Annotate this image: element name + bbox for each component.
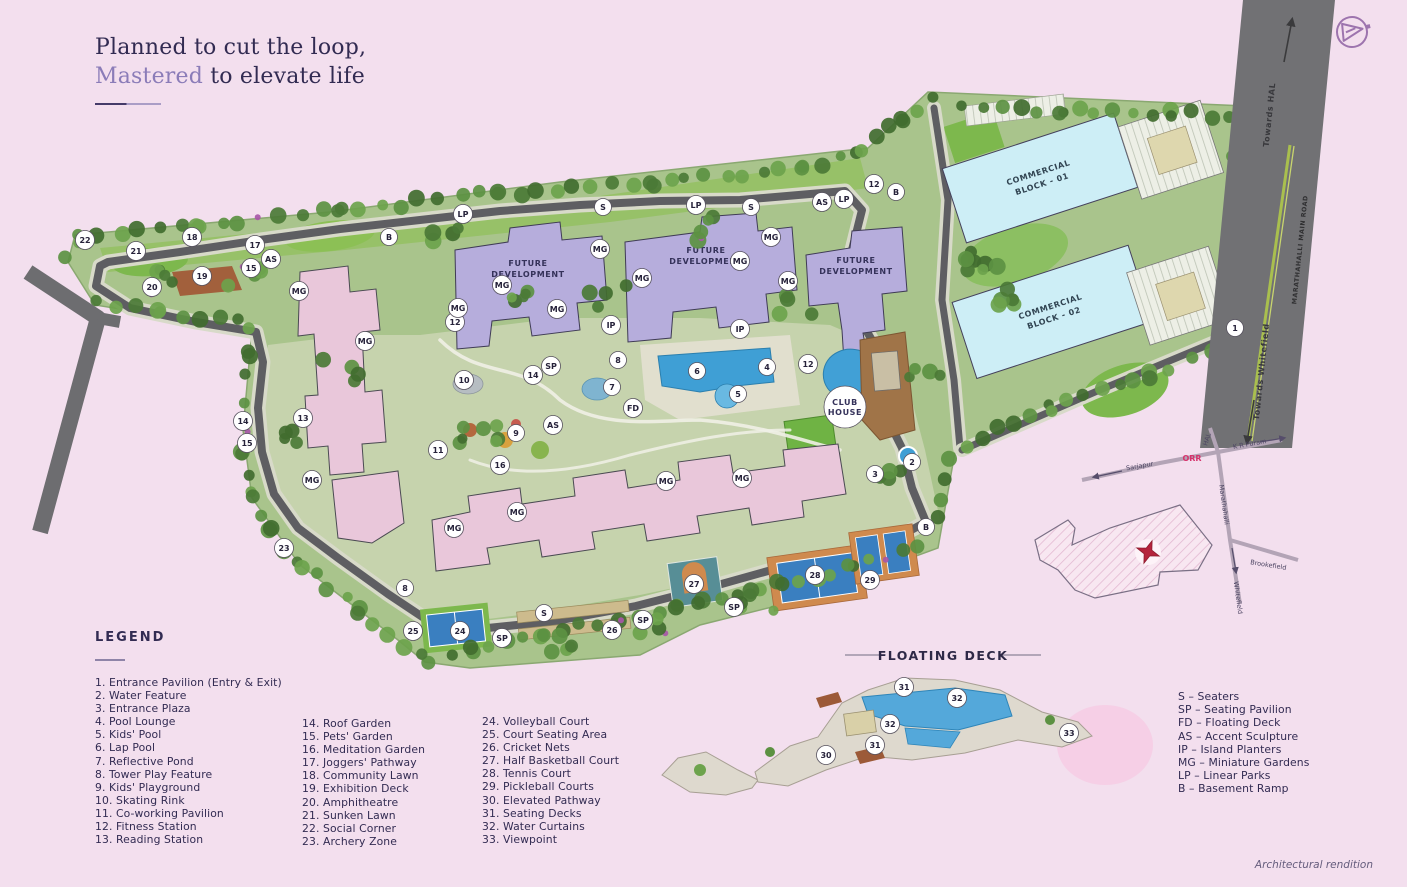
map-marker: MG — [303, 471, 322, 490]
legend-item: 18. Community Lawn — [302, 769, 425, 782]
inset-whitefield-label: Whitefield — [1232, 581, 1245, 615]
legend-heading: LEGEND — [95, 630, 165, 645]
svg-text:MG: MG — [733, 257, 748, 266]
map-marker: MG — [508, 503, 527, 522]
legend-abbreviation-item: IP – Island Planters — [1178, 743, 1309, 756]
legend-item: 33. Viewpoint — [482, 833, 619, 846]
map-marker: 6 — [689, 363, 706, 380]
site-plan-page: FUTURE DEVELOPMENT FUTURE DEVELOPMENT FU… — [0, 0, 1407, 887]
svg-text:MG: MG — [550, 305, 565, 314]
map-marker: S — [743, 199, 760, 216]
floating-deck-inset: FLOATING DECK — [662, 648, 1153, 795]
svg-text:LP: LP — [691, 201, 702, 210]
map-marker: 20 — [143, 278, 162, 297]
svg-text:33: 33 — [1063, 729, 1074, 738]
map-marker: IP — [602, 316, 621, 335]
map-marker: 32 — [948, 689, 967, 708]
svg-text:27: 27 — [688, 580, 699, 589]
map-marker: 4 — [759, 359, 776, 376]
legend-abbreviation-item: AS – Accent Sculpture — [1178, 730, 1309, 743]
legend-item: 7. Reflective Pond — [95, 755, 282, 768]
map-marker: AS — [262, 250, 281, 269]
map-marker: 26 — [603, 621, 622, 640]
svg-text:6: 6 — [694, 367, 700, 376]
legend-item: 4. Pool Lounge — [95, 715, 282, 728]
legend-item: 17. Joggers' Pathway — [302, 756, 425, 769]
svg-text:MG: MG — [510, 508, 525, 517]
map-marker: 31 — [895, 678, 914, 697]
legend-item: 29. Pickleball Courts — [482, 780, 619, 793]
svg-text:LP: LP — [839, 195, 850, 204]
svg-text:19: 19 — [196, 272, 208, 281]
svg-text:4: 4 — [764, 363, 770, 372]
map-marker: 5 — [730, 386, 747, 403]
svg-text:MG: MG — [659, 477, 674, 486]
svg-text:20: 20 — [146, 283, 158, 292]
map-marker: 1 — [1227, 320, 1244, 337]
legend-item: 8. Tower Play Feature — [95, 768, 282, 781]
legend-item: 10. Skating Rink — [95, 794, 282, 807]
legend-item: 21. Sunken Lawn — [302, 809, 425, 822]
map-marker: 18 — [183, 228, 202, 247]
legend-column-2: 14. Roof Garden15. Pets' Garden16. Medit… — [302, 717, 425, 848]
map-marker: 15 — [238, 434, 257, 453]
svg-text:17: 17 — [249, 241, 260, 250]
future3-label-line2: DEVELOPMENT — [819, 267, 892, 276]
map-marker: LP — [687, 196, 706, 215]
footnote: Architectural rendition — [1255, 859, 1373, 871]
svg-text:32: 32 — [884, 720, 895, 729]
map-marker: 28 — [806, 566, 825, 585]
svg-text:AS: AS — [816, 198, 828, 207]
map-marker: MG — [731, 252, 750, 271]
map-marker: 23 — [275, 539, 294, 558]
map-marker: 10 — [455, 371, 474, 390]
page-title: Planned to cut the loop, Mastered to ele… — [95, 33, 366, 105]
floating-deck-title: FLOATING DECK — [878, 648, 1009, 663]
legend-item: 5. Kids' Pool — [95, 728, 282, 741]
future3-label-line1: FUTURE — [836, 256, 875, 265]
svg-text:8: 8 — [402, 584, 408, 593]
svg-text:MG: MG — [781, 277, 796, 286]
legend-item: 14. Roof Garden — [302, 717, 425, 730]
legend-item: 16. Meditation Garden — [302, 743, 425, 756]
map-marker: B — [918, 519, 935, 536]
map-marker: 11 — [429, 441, 448, 460]
svg-text:IP: IP — [736, 325, 745, 334]
map-marker: MG — [548, 300, 567, 319]
svg-text:23: 23 — [278, 544, 289, 553]
map-marker: MG — [779, 272, 798, 291]
title-line1: Planned to cut the loop, — [95, 33, 366, 62]
svg-text:12: 12 — [449, 318, 460, 327]
legend-item: 30. Elevated Pathway — [482, 794, 619, 807]
inset-brookefield-label: Brookefield — [1250, 558, 1287, 572]
title-line2: Mastered to elevate life — [95, 62, 366, 91]
svg-text:MG: MG — [495, 281, 510, 290]
map-marker: MG — [493, 276, 512, 295]
svg-text:3: 3 — [872, 470, 878, 479]
legend-item: 3. Entrance Plaza — [95, 702, 282, 715]
legend-item: 23. Archery Zone — [302, 835, 425, 848]
map-marker: 9 — [508, 425, 525, 442]
map-marker: 12 — [799, 355, 818, 374]
legend-item: 19. Exhibition Deck — [302, 782, 425, 795]
map-marker: AS — [813, 193, 832, 212]
map-marker: 30 — [817, 746, 836, 765]
svg-text:29: 29 — [864, 576, 876, 585]
title-rest: to elevate life — [203, 64, 365, 89]
map-marker: 29 — [861, 571, 880, 590]
svg-text:11: 11 — [432, 446, 444, 455]
location-inset: HAL K R Puram ORR Sarjapur Marathahalli … — [1035, 428, 1298, 615]
legend-item: 13. Reading Station — [95, 833, 282, 846]
map-marker: IP — [731, 320, 750, 339]
map-marker: 8 — [610, 352, 627, 369]
map-marker: MG — [762, 228, 781, 247]
svg-text:MG: MG — [451, 304, 466, 313]
legend-abbreviation-item: SP – Seating Pavilion — [1178, 703, 1309, 716]
map-marker: MG — [591, 240, 610, 259]
map-marker: B — [381, 229, 398, 246]
club-label-line1: CLUB — [832, 398, 858, 407]
svg-text:S: S — [541, 609, 547, 618]
map-marker: LP — [454, 205, 473, 224]
legend-item: 32. Water Curtains — [482, 820, 619, 833]
future1-label-line1: FUTURE — [508, 259, 547, 268]
svg-text:10: 10 — [458, 376, 470, 385]
map-marker: 17 — [246, 236, 265, 255]
svg-text:24: 24 — [454, 627, 466, 636]
map-marker: 32 — [881, 715, 900, 734]
legend-item: 31. Seating Decks — [482, 807, 619, 820]
svg-text:SP: SP — [496, 634, 508, 643]
svg-text:AS: AS — [265, 255, 277, 264]
svg-text:5: 5 — [735, 390, 741, 399]
legend-item: 11. Co-working Pavilion — [95, 807, 282, 820]
svg-text:21: 21 — [130, 247, 142, 256]
legend-abbreviation-item: S – Seaters — [1178, 690, 1309, 703]
svg-text:MG: MG — [735, 474, 750, 483]
legend-item: 12. Fitness Station — [95, 820, 282, 833]
svg-text:SP: SP — [545, 362, 557, 371]
map-marker: SP — [725, 598, 744, 617]
map-marker: 25 — [404, 622, 423, 641]
legend-item: 9. Kids' Playground — [95, 781, 282, 794]
title-accent: Mastered — [95, 64, 203, 89]
svg-text:9: 9 — [513, 429, 519, 438]
map-marker: MG — [633, 269, 652, 288]
map-marker: 7 — [604, 379, 621, 396]
map-marker: 12 — [865, 175, 884, 194]
legend-abbreviations: S – SeatersSP – Seating PavilionFD – Flo… — [1178, 690, 1309, 796]
map-marker: 14 — [234, 412, 253, 431]
map-marker: S — [536, 605, 553, 622]
map-marker: 15 — [242, 259, 261, 278]
svg-text:LP: LP — [458, 210, 469, 219]
map-marker: MG — [356, 332, 375, 351]
svg-text:AS: AS — [547, 421, 559, 430]
map-marker: 24 — [451, 622, 470, 641]
inset-marathahalli-label: Marathahalli — [1217, 484, 1231, 525]
svg-text:MG: MG — [358, 337, 373, 346]
legend-abbreviation-item: B – Basement Ramp — [1178, 782, 1309, 795]
legend-column-1: 1. Entrance Pavilion (Entry & Exit)2. Wa… — [95, 676, 282, 846]
map-marker: SP — [542, 357, 561, 376]
legend-item: 25. Court Seating Area — [482, 728, 619, 741]
svg-text:13: 13 — [297, 414, 308, 423]
svg-text:31: 31 — [898, 683, 910, 692]
legend-item: 27. Half Basketball Court — [482, 754, 619, 767]
map-marker: MG — [657, 472, 676, 491]
map-marker: SP — [493, 629, 512, 648]
map-marker: 16 — [491, 456, 510, 475]
future2-label-line1: FUTURE — [686, 246, 725, 255]
map-marker: 13 — [294, 409, 313, 428]
map-marker: AS — [544, 416, 563, 435]
map-marker: MG — [290, 282, 309, 301]
map-marker: S — [595, 199, 612, 216]
legend-item: 26. Cricket Nets — [482, 741, 619, 754]
svg-text:IP: IP — [607, 321, 616, 330]
svg-text:SP: SP — [728, 603, 740, 612]
svg-text:12: 12 — [802, 360, 813, 369]
svg-text:S: S — [600, 203, 606, 212]
svg-text:B: B — [923, 523, 929, 532]
legend-column-3: 24. Volleyball Court25. Court Seating Ar… — [482, 715, 619, 846]
svg-text:B: B — [893, 188, 899, 197]
svg-text:30: 30 — [820, 751, 832, 760]
map-marker: 31 — [866, 736, 885, 755]
map-marker: 33 — [1060, 724, 1079, 743]
svg-text:32: 32 — [951, 694, 962, 703]
map-marker: FD — [624, 399, 643, 418]
map-marker: 2 — [904, 454, 921, 471]
map-marker: 3 — [867, 466, 884, 483]
svg-text:SP: SP — [637, 616, 649, 625]
map-marker: MG — [445, 519, 464, 538]
legend-item: 22. Social Corner — [302, 822, 425, 835]
svg-text:MG: MG — [764, 233, 779, 242]
legend-item: 2. Water Feature — [95, 689, 282, 702]
svg-text:12: 12 — [868, 180, 879, 189]
svg-text:1: 1 — [1232, 324, 1238, 333]
svg-text:28: 28 — [809, 571, 821, 580]
legend-item: 24. Volleyball Court — [482, 715, 619, 728]
legend-abbreviation-item: LP – Linear Parks — [1178, 769, 1309, 782]
map-marker: MG — [733, 469, 752, 488]
map-marker: 21 — [127, 242, 146, 261]
entrance-roads — [28, 272, 120, 532]
svg-text:16: 16 — [494, 461, 506, 470]
svg-text:MG: MG — [447, 524, 462, 533]
svg-text:14: 14 — [527, 371, 539, 380]
map-marker: 27 — [685, 575, 704, 594]
svg-text:S: S — [748, 203, 754, 212]
club-label-line2: HOUSE — [828, 408, 862, 417]
inset-orr-label: ORR — [1182, 454, 1201, 463]
svg-text:2: 2 — [909, 458, 915, 467]
svg-text:15: 15 — [245, 264, 257, 273]
svg-text:B: B — [386, 233, 392, 242]
map-marker: 8 — [397, 580, 414, 597]
legend-item: 15. Pets' Garden — [302, 730, 425, 743]
svg-text:MG: MG — [292, 287, 307, 296]
title-underline — [95, 103, 161, 105]
club-house-badge — [824, 386, 866, 428]
map-marker: 19 — [193, 267, 212, 286]
legend-underline — [95, 659, 125, 661]
map-marker: 22 — [76, 231, 95, 250]
inset-sarjapur-label: Sarjapur — [1125, 460, 1154, 473]
svg-text:MG: MG — [305, 476, 320, 485]
svg-text:8: 8 — [615, 356, 621, 365]
svg-text:MG: MG — [635, 274, 650, 283]
legend-item: 6. Lap Pool — [95, 741, 282, 754]
svg-text:14: 14 — [237, 417, 249, 426]
legend-item: 28. Tennis Court — [482, 767, 619, 780]
legend-item: 20. Amphitheatre — [302, 796, 425, 809]
svg-text:FD: FD — [627, 404, 639, 413]
legend-abbreviation-item: FD – Floating Deck — [1178, 716, 1309, 729]
svg-text:26: 26 — [606, 626, 618, 635]
legend-abbreviation-item: MG – Miniature Gardens — [1178, 756, 1309, 769]
svg-text:15: 15 — [241, 439, 253, 448]
svg-text:7: 7 — [609, 383, 615, 392]
svg-text:18: 18 — [186, 233, 198, 242]
svg-text:25: 25 — [407, 627, 419, 636]
map-marker: LP — [835, 190, 854, 209]
svg-text:22: 22 — [79, 236, 90, 245]
legend-item: 1. Entrance Pavilion (Entry & Exit) — [95, 676, 282, 689]
map-marker: B — [888, 184, 905, 201]
svg-text:31: 31 — [869, 741, 881, 750]
map-marker: MG — [449, 299, 468, 318]
compass-icon — [1334, 13, 1373, 49]
map-marker: 14 — [524, 366, 543, 385]
svg-text:MG: MG — [593, 245, 608, 254]
map-marker: SP — [634, 611, 653, 630]
